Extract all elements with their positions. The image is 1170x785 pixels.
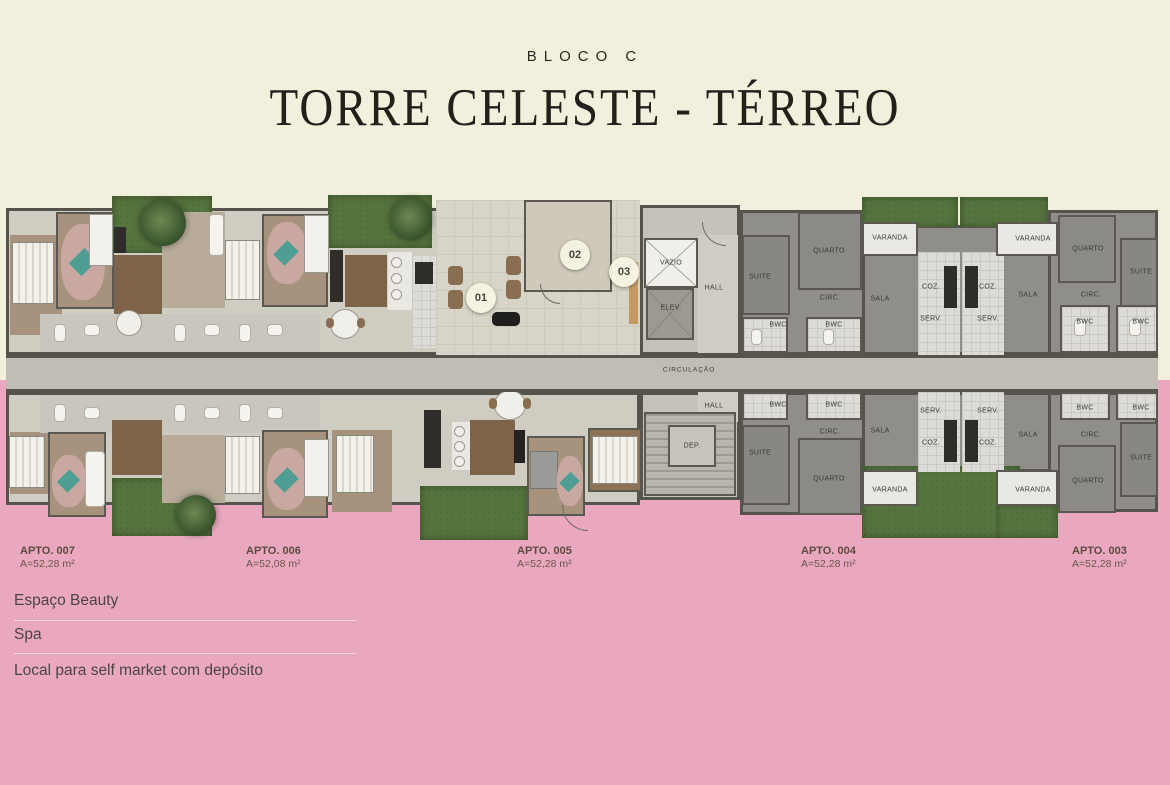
room-label-quarto: QUARTO — [813, 476, 845, 483]
salon-chair — [506, 256, 521, 275]
room-label-varanda: VARANDA — [872, 235, 907, 242]
room-label-serv: SERV. — [920, 408, 942, 415]
room-label-circ: CIRC. — [820, 295, 841, 302]
stool — [392, 274, 401, 283]
dining-table — [495, 391, 525, 419]
bed — [337, 436, 373, 492]
room-label-quarto: QUARTO — [1072, 246, 1104, 253]
apartment-area: A=52,28 m² — [801, 558, 856, 570]
amenity-marker-01: 01 — [466, 283, 496, 313]
apartment-area: A=52,28 m² — [1072, 558, 1127, 570]
bunk-bed — [305, 440, 328, 496]
room-label-sala: SALA — [1018, 432, 1037, 439]
room-label-quarto: QUARTO — [813, 248, 845, 255]
room-label-serv: SERV. — [977, 316, 999, 323]
stool — [392, 290, 401, 299]
room-label-vazio: VAZIO — [660, 260, 682, 267]
legend-divider — [14, 620, 356, 621]
sofa — [470, 420, 515, 475]
legend-divider — [14, 653, 356, 654]
room-label-elev: ELEV. — [661, 305, 682, 312]
kitchen-counter — [944, 420, 957, 462]
room-label-coz: COZ. — [979, 284, 997, 291]
room-label-varanda: VARANDA — [1015, 487, 1050, 494]
room-label-bwc: BWC — [769, 402, 786, 409]
room-label-circulacao: CIRCULAÇÃO — [663, 367, 716, 374]
toilet — [824, 330, 833, 344]
garden-patch — [996, 504, 1058, 538]
suite-room — [1120, 238, 1158, 313]
bedroom-floor — [162, 435, 225, 503]
dining-chair — [357, 318, 365, 328]
door-arc — [562, 505, 588, 531]
garden-patch — [420, 486, 528, 540]
dining-table — [117, 311, 141, 335]
legend-item-self-market: Local para self market com depósito — [14, 662, 263, 680]
bed — [10, 437, 44, 487]
bed — [13, 243, 53, 303]
room-label-circ: CIRC. — [1081, 292, 1102, 299]
legend-item-espaco-beauty: Espaço Beauty — [14, 592, 118, 610]
toilet — [55, 325, 65, 341]
bwc-room — [1060, 305, 1110, 353]
room-label-hall: HALL — [705, 403, 724, 410]
kitchen-counter — [944, 266, 957, 308]
salon-chair — [506, 280, 521, 299]
kitchen-counter — [965, 266, 978, 308]
legend-item-spa: Spa — [14, 626, 42, 644]
living-floor — [112, 420, 162, 475]
bed — [593, 437, 637, 483]
salon-chair — [448, 266, 463, 285]
dining-chair — [326, 318, 334, 328]
room-label-suite: SUITE — [749, 450, 771, 457]
apartment-area: A=52,28 m² — [517, 558, 572, 570]
sink — [85, 325, 99, 335]
elevator — [646, 288, 694, 340]
toilet — [175, 325, 185, 341]
room-label-coz: COZ. — [922, 284, 940, 291]
apartment-label-006: APTO. 006 A=52,08 m² — [246, 545, 301, 570]
toilet — [752, 330, 761, 344]
suite-room — [742, 425, 790, 505]
massage-chair — [492, 312, 520, 326]
bed-gray — [531, 452, 557, 488]
sink — [85, 408, 99, 418]
dining-table — [331, 310, 359, 338]
stool — [455, 442, 464, 451]
amenity-marker-03: 03 — [609, 257, 639, 287]
sink — [205, 408, 219, 418]
amenity-marker-02: 02 — [560, 240, 590, 270]
apartment-id: APTO. 006 — [246, 545, 301, 557]
room-label-varanda: VARANDA — [1015, 236, 1050, 243]
room-label-circ: CIRC. — [820, 429, 841, 436]
tv-cabinet — [514, 430, 525, 463]
bed — [226, 437, 259, 493]
room-label-bwc: BWC — [1076, 405, 1093, 412]
room-label-bwc: BWC — [1132, 319, 1149, 326]
kitchen-counter — [965, 420, 978, 462]
room-label-bwc: BWC — [825, 402, 842, 409]
tree — [140, 200, 186, 246]
tree — [176, 495, 216, 535]
room-label-suite: SUITE — [1130, 455, 1152, 462]
sink — [268, 325, 282, 335]
stove — [415, 262, 433, 284]
room-label-dep: DEP. — [684, 443, 701, 450]
tree — [390, 198, 432, 240]
room-label-sala: SALA — [870, 296, 889, 303]
room-label-bwc: BWC — [1076, 319, 1093, 326]
apartment-id: APTO. 004 — [801, 545, 856, 557]
room-label-quarto: QUARTO — [1072, 478, 1104, 485]
wardrobe — [210, 215, 223, 255]
stool — [392, 258, 401, 267]
room-label-varanda: VARANDA — [872, 487, 907, 494]
hall-floor — [698, 235, 738, 353]
apartment-area: A=52,08 m² — [246, 558, 301, 570]
sink — [205, 325, 219, 335]
room-label-serv: SERV. — [920, 316, 942, 323]
room-label-sala: SALA — [870, 428, 889, 435]
room-label-coz: COZ. — [979, 440, 997, 447]
apartment-label-004: APTO. 004 A=52,28 m² — [801, 545, 856, 570]
corridor — [6, 355, 1158, 392]
stool — [455, 427, 464, 436]
room-label-bwc: BWC — [825, 322, 842, 329]
sink — [268, 408, 282, 418]
kitchen-counter — [424, 410, 441, 468]
apartment-label-003: APTO. 003 A=52,28 m² — [1072, 545, 1127, 570]
apartment-label-005: APTO. 005 A=52,28 m² — [517, 545, 572, 570]
kitchen-counter — [330, 250, 343, 302]
apartment-id: APTO. 003 — [1072, 545, 1127, 557]
room-label-suite: SUITE — [749, 274, 771, 281]
toilet — [240, 405, 250, 421]
toilet — [240, 325, 250, 341]
bunk-bed — [90, 215, 112, 265]
stool — [455, 457, 464, 466]
apartment-id: APTO. 005 — [517, 545, 572, 557]
apartment-label-007: APTO. 007 A=52,28 m² — [20, 545, 75, 570]
toilet — [175, 405, 185, 421]
sofa — [345, 255, 387, 307]
toilet — [55, 405, 65, 421]
dining-chair — [489, 398, 497, 409]
room-label-suite: SUITE — [1130, 269, 1152, 276]
room-label-bwc: BWC — [1132, 405, 1149, 412]
bed — [226, 241, 259, 299]
room-label-circ: CIRC. — [1081, 432, 1102, 439]
room-label-serv: SERV. — [977, 408, 999, 415]
dining-chair — [523, 398, 531, 409]
dresser — [86, 452, 104, 506]
bunk-bed — [305, 216, 328, 272]
room-label-sala: SALA — [1018, 292, 1037, 299]
room-label-coz: COZ. — [922, 440, 940, 447]
apartment-area: A=52,28 m² — [20, 558, 75, 570]
room-label-bwc: BWC — [769, 322, 786, 329]
apartment-id: APTO. 007 — [20, 545, 75, 557]
kitchen-counter — [114, 227, 126, 253]
room-label-hall: HALL — [705, 285, 724, 292]
salon-chair — [448, 290, 463, 309]
